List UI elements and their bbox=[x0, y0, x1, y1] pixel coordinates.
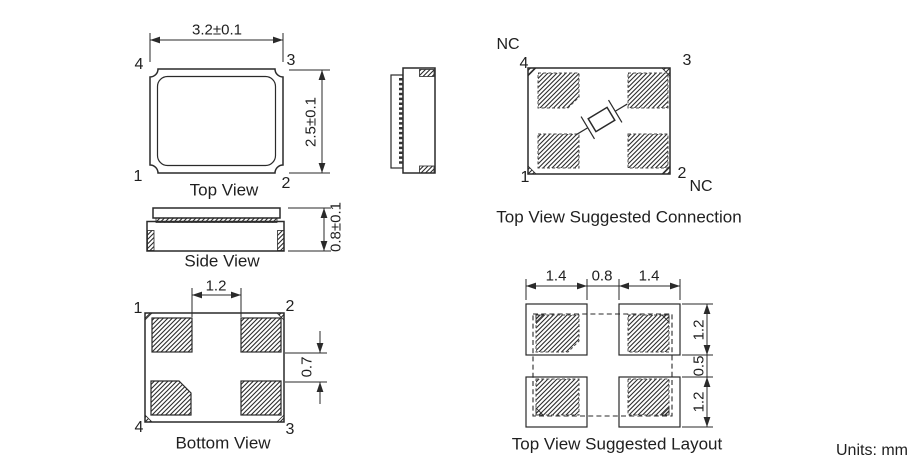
connection-view-drawing bbox=[528, 68, 670, 174]
bottom-view-pin-4-label: 4 bbox=[135, 420, 144, 436]
crystal-package-drawing-page: 3.2±0.1 2.5±0.1 4 3 1 2 Top View 0.8±0.1… bbox=[0, 0, 911, 474]
layout-view-title: Top View Suggested Layout bbox=[512, 436, 722, 453]
lid-outline bbox=[153, 208, 280, 218]
bottom-view-drawing bbox=[145, 288, 327, 422]
connection-pin-1-label: 1 bbox=[521, 170, 530, 186]
bottom-view-pin-3-label: 3 bbox=[286, 422, 295, 438]
pad-3 bbox=[628, 73, 668, 108]
pad-top bbox=[420, 70, 435, 77]
top-view-title: Top View bbox=[190, 182, 259, 199]
side-view-thickness-dim-label: 0.8±0.1 bbox=[329, 202, 344, 252]
layout-view-drawing bbox=[526, 279, 713, 427]
layout-dim-left-pad-width: 1.4 bbox=[546, 269, 567, 284]
pad-4-chamfered bbox=[538, 73, 579, 108]
pad-1 bbox=[152, 318, 192, 352]
pad-2 bbox=[241, 318, 281, 352]
bottom-view-gap-dim-label: 0.7 bbox=[300, 357, 315, 378]
pad-top-right bbox=[628, 315, 669, 352]
end-profile-drawing bbox=[391, 68, 435, 173]
top-view-width-dim-label: 3.2±0.1 bbox=[192, 23, 242, 38]
connection-pin-4-label: 4 bbox=[520, 56, 529, 72]
top-view-height-dim-label: 2.5±0.1 bbox=[304, 97, 319, 147]
layout-dim-bottom-pad-height: 1.2 bbox=[692, 392, 707, 413]
pad-3 bbox=[241, 381, 281, 415]
bottom-view-pin-1-label: 1 bbox=[134, 301, 143, 317]
layout-dim-right-pad-width: 1.4 bbox=[639, 269, 660, 284]
pad-top-left-chamfered bbox=[536, 315, 579, 352]
top-view-pin-2-label: 2 bbox=[282, 176, 291, 192]
top-view-pin-4-label: 4 bbox=[135, 57, 144, 73]
layout-dim-pad-gap-x: 0.8 bbox=[592, 269, 613, 284]
connection-pin-3-label: 3 bbox=[683, 53, 692, 69]
bottom-view-title: Bottom View bbox=[175, 435, 270, 452]
pad-2 bbox=[628, 134, 668, 168]
pad-right bbox=[278, 231, 285, 251]
bottom-view-spacing-dim-label: 1.2 bbox=[206, 279, 227, 294]
thickness-dimension bbox=[288, 208, 331, 251]
pad-bottom bbox=[420, 166, 435, 173]
connection-nc-bottom-label: NC bbox=[689, 179, 712, 195]
side-view-title: Side View bbox=[184, 253, 259, 270]
connection-view-title: Top View Suggested Connection bbox=[496, 209, 741, 226]
body-profile bbox=[403, 68, 435, 173]
connection-nc-top-label: NC bbox=[496, 37, 519, 53]
body-outline bbox=[147, 222, 284, 252]
layout-dim-top-pad-height: 1.2 bbox=[692, 320, 707, 341]
pad-1 bbox=[538, 134, 579, 168]
pad-bottom-left bbox=[536, 379, 579, 415]
package-outline bbox=[150, 69, 283, 173]
pad-bottom-right bbox=[628, 379, 669, 415]
bottom-view-pin-2-label: 2 bbox=[286, 299, 295, 315]
top-view-pin-1-label: 1 bbox=[134, 169, 143, 185]
units-label: Units: mm bbox=[836, 443, 908, 459]
seal-strip bbox=[156, 218, 277, 223]
side-view-drawing bbox=[147, 208, 331, 251]
top-view-pin-3-label: 3 bbox=[287, 53, 296, 69]
layout-dim-pad-gap-y: 0.5 bbox=[692, 356, 707, 377]
connection-pin-2-label: 2 bbox=[678, 166, 687, 182]
pad-left bbox=[148, 231, 155, 251]
